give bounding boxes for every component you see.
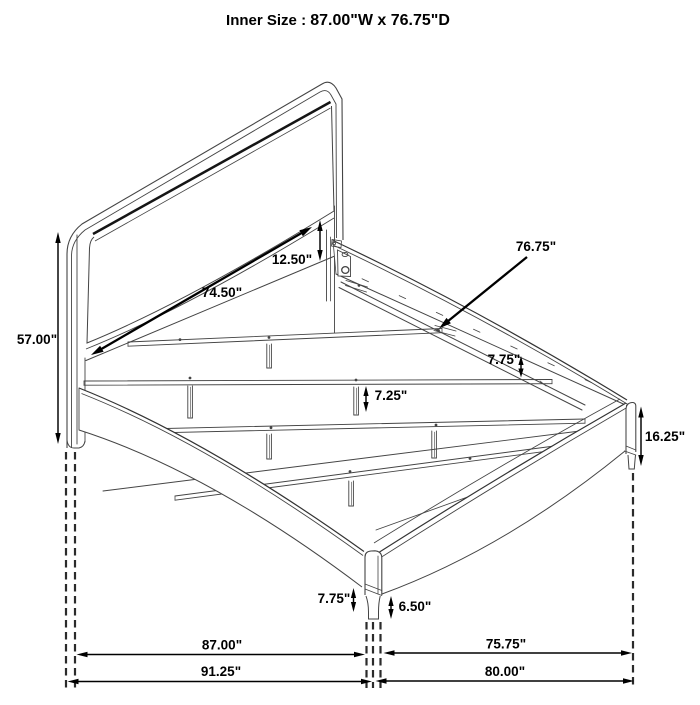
svg-text:80.00": 80.00" — [485, 664, 525, 679]
svg-text:76.75": 76.75" — [516, 239, 556, 254]
svg-text:7.75": 7.75" — [318, 591, 351, 606]
svg-text:91.25": 91.25" — [201, 664, 241, 679]
svg-text:7.75": 7.75" — [488, 352, 521, 367]
svg-text:6.50": 6.50" — [399, 599, 432, 614]
svg-text:12.50": 12.50" — [272, 252, 312, 267]
svg-text:57.00": 57.00" — [17, 332, 57, 347]
svg-text:16.25": 16.25" — [645, 429, 685, 444]
svg-text:87.00": 87.00" — [202, 637, 242, 652]
svg-text:Inner Size : 87.00"W x 76.75"D: Inner Size : 87.00"W x 76.75"D — [226, 12, 450, 29]
svg-text:75.75": 75.75" — [486, 636, 526, 651]
svg-text:74.50": 74.50" — [202, 285, 242, 300]
svg-text:7.25": 7.25" — [375, 388, 408, 403]
